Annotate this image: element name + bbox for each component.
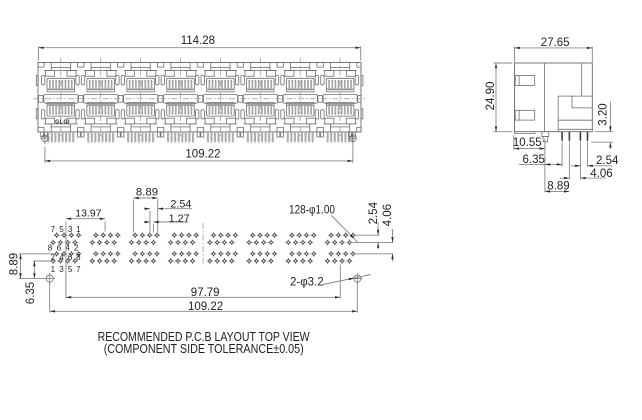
svg-text:128-φ1.00: 128-φ1.00 bbox=[289, 204, 335, 216]
svg-text:4.06: 4.06 bbox=[382, 204, 394, 226]
svg-text:3: 3 bbox=[59, 265, 64, 274]
svg-text:4: 4 bbox=[59, 253, 64, 262]
svg-text:97.79: 97.79 bbox=[191, 287, 220, 299]
svg-text:(COMPONENT SIDE TOLERANCE±0.05: (COMPONENT SIDE TOLERANCE±0.05) bbox=[104, 341, 304, 356]
svg-text:6: 6 bbox=[68, 253, 73, 262]
svg-text:2.54: 2.54 bbox=[170, 199, 191, 211]
svg-text:2.54: 2.54 bbox=[596, 155, 619, 167]
svg-text:109.22: 109.22 bbox=[185, 148, 220, 160]
svg-text:7: 7 bbox=[76, 265, 81, 274]
svg-text:5: 5 bbox=[68, 265, 73, 274]
svg-text:5: 5 bbox=[59, 225, 64, 234]
svg-text:10.55: 10.55 bbox=[513, 137, 542, 149]
svg-text:1: 1 bbox=[76, 225, 81, 234]
svg-text:2: 2 bbox=[74, 243, 79, 252]
svg-text:27.65: 27.65 bbox=[541, 37, 570, 49]
svg-text:2.54: 2.54 bbox=[368, 201, 380, 224]
svg-text:109.22: 109.22 bbox=[188, 301, 223, 313]
svg-text:6: 6 bbox=[57, 243, 62, 252]
svg-text:GLGI: GLGI bbox=[55, 120, 70, 126]
svg-text:114.28: 114.28 bbox=[181, 35, 215, 47]
svg-text:8.89: 8.89 bbox=[547, 181, 569, 193]
svg-text:8.89: 8.89 bbox=[8, 253, 20, 275]
svg-text:6.35: 6.35 bbox=[25, 282, 37, 304]
svg-text:2: 2 bbox=[51, 253, 56, 262]
svg-text:8: 8 bbox=[76, 253, 81, 262]
svg-text:13.97: 13.97 bbox=[75, 208, 101, 219]
svg-text:6.35: 6.35 bbox=[523, 154, 545, 166]
svg-text:4.06: 4.06 bbox=[590, 168, 612, 180]
svg-text:2-φ3.2: 2-φ3.2 bbox=[290, 277, 324, 289]
svg-text:8: 8 bbox=[48, 243, 53, 252]
svg-text:8.89: 8.89 bbox=[136, 186, 158, 198]
svg-text:7: 7 bbox=[51, 225, 56, 234]
svg-text:1.27: 1.27 bbox=[169, 213, 190, 225]
svg-text:3: 3 bbox=[68, 225, 73, 234]
svg-text:1: 1 bbox=[51, 265, 56, 274]
svg-text:3.20: 3.20 bbox=[597, 103, 609, 125]
svg-text:24.90: 24.90 bbox=[485, 82, 497, 111]
